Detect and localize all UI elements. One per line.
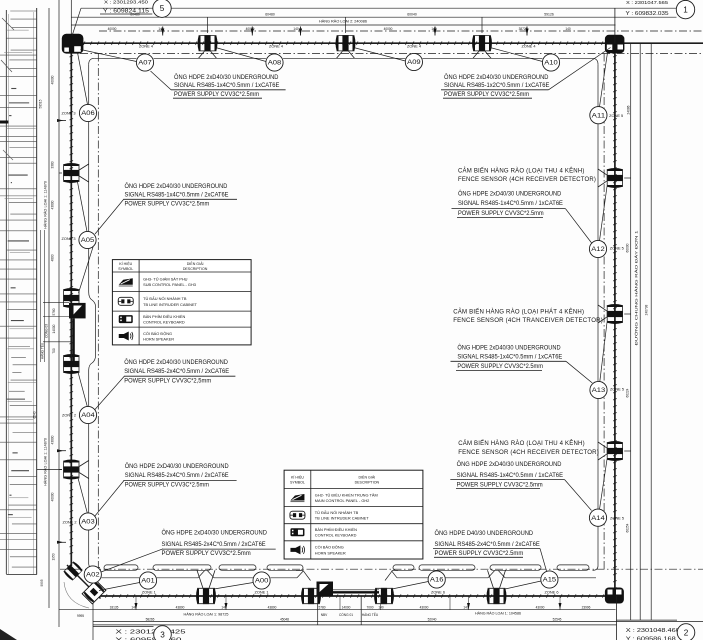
svg-text:DESCRIPTION: DESCRIPTION (355, 481, 380, 485)
svg-text:CẢM BIẾN HÀNG RÀO (LOẠI THU 4: CẢM BIẾN HÀNG RÀO (LOẠI THU 4 KÊNH) (458, 167, 585, 175)
svg-text:ZONE 5: ZONE 5 (610, 247, 624, 251)
svg-text:HÀNG TẾU: HÀNG TẾU (40, 342, 45, 359)
svg-text:14000: 14000 (342, 605, 351, 609)
svg-text:CỔNG 03: CỔNG 03 (44, 324, 49, 338)
svg-text:A07: A07 (138, 60, 152, 67)
svg-text:ÔNG HDPE 2xD40/30 UNDERGROUND: ÔNG HDPE 2xD40/30 UNDERGROUND (162, 528, 268, 537)
svg-text:3: 3 (160, 630, 165, 639)
svg-text:ÔNG HDPE 2xD40/30 UNDERGROUND: ÔNG HDPE 2xD40/30 UNDERGROUND (174, 72, 279, 81)
svg-text:X : 2301293.450: X : 2301293.450 (104, 0, 149, 5)
svg-text:6540: 6540 (33, 411, 37, 418)
svg-text:SIGNAL RS485-1x4C*0.5mm / 1xCA: SIGNAL RS485-1x4C*0.5mm / 1xCAT6E (457, 472, 564, 479)
svg-text:140: 140 (158, 27, 164, 31)
svg-text:SYMBOL: SYMBOL (118, 267, 133, 271)
svg-text:HÀNG RÀO LOẠI 1: 114870: HÀNG RÀO LOẠI 1: 114870 (44, 438, 48, 486)
svg-text:SYMBOL: SYMBOL (290, 481, 305, 485)
svg-text:ZONE 1: ZONE 1 (142, 591, 156, 595)
svg-text:ZONE 4: ZONE 4 (139, 45, 153, 49)
svg-text:40000: 40000 (51, 492, 55, 501)
svg-text:60040: 60040 (407, 13, 417, 17)
svg-text:DIỄN GIẢI: DIỄN GIẢI (358, 475, 375, 480)
svg-text:7000: 7000 (366, 605, 373, 609)
svg-text:DESCRIPTION: DESCRIPTION (183, 267, 208, 271)
svg-text:A11: A11 (592, 112, 606, 119)
svg-text:700: 700 (52, 348, 56, 354)
svg-text:ZONE 5: ZONE 5 (609, 114, 623, 118)
svg-text:5780: 5780 (318, 605, 325, 609)
svg-text:ĐƯỜNG CHUNG HÀNG RÀO ĐÁY ĐƠN 1: ĐƯỜNG CHUNG HÀNG RÀO ĐÁY ĐƠN 1 (634, 230, 639, 345)
svg-text:POWER SUPPLY CVV3C*2.5mm: POWER SUPPLY CVV3C*2.5mm (435, 550, 524, 557)
svg-text:ZONE 6: ZONE 6 (431, 590, 445, 594)
svg-text:1: 1 (683, 5, 688, 14)
svg-text:ÔNG HDPE D40/30 UNDERGROUND: ÔNG HDPE D40/30 UNDERGROUND (435, 528, 534, 537)
svg-text:A15: A15 (543, 577, 557, 584)
svg-text:POWER SUPPLY CVV3C*2.5mm: POWER SUPPLY CVV3C*2.5mm (162, 550, 252, 557)
svg-text:A04: A04 (81, 412, 95, 419)
svg-text:SIGNAL RS485-1x2C*0.5mm / 1xCA: SIGNAL RS485-1x2C*0.5mm / 1xCAT6E (444, 82, 550, 89)
svg-text:SIGNAL RS485-2x4C*0.5mm / 2xCA: SIGNAL RS485-2x4C*0.5mm / 2xCAT6E (124, 368, 229, 375)
svg-text:FENCE SENSOR (4CH TRANCEIVER D: FENCE SENSOR (4CH TRANCEIVER DETECTOR) (453, 317, 603, 324)
svg-text:14000: 14000 (52, 324, 56, 333)
svg-text:KÍ HIỆU: KÍ HIỆU (291, 475, 304, 480)
svg-text:CÒI BÁO ĐỘNG: CÒI BÁO ĐỘNG (143, 331, 172, 336)
svg-text:52545: 52545 (553, 617, 562, 621)
svg-text:140: 140 (431, 27, 437, 31)
svg-text:A14: A14 (591, 515, 605, 522)
svg-text:HÀNG RÀO LOẠI 1: 104586: HÀNG RÀO LOẠI 1: 104586 (475, 611, 521, 615)
svg-text:140: 140 (131, 605, 137, 609)
svg-text:43800: 43800 (268, 605, 277, 609)
svg-text:18135: 18135 (110, 605, 119, 609)
svg-text:KÍ HIỆU: KÍ HIỆU (119, 261, 132, 266)
svg-text:POWER SUPPLY CVV3C*2.5mm: POWER SUPPLY CVV3C*2.5mm (125, 482, 210, 489)
svg-text:HÀNG RÀO LOẠI 2: 240086: HÀNG RÀO LOẠI 2: 240086 (319, 20, 367, 24)
svg-text:NBV: NBV (321, 613, 328, 617)
svg-text:5780: 5780 (52, 308, 56, 315)
svg-text:CỔNG 01: CỔNG 01 (339, 612, 353, 617)
svg-text:A16: A16 (430, 577, 444, 584)
svg-text:52040: 52040 (428, 617, 437, 621)
svg-text:X : 2301048.460: X : 2301048.460 (626, 628, 680, 634)
svg-text:ZONE 5: ZONE 5 (610, 517, 624, 521)
svg-text:A01: A01 (141, 578, 155, 585)
svg-text:60480: 60480 (130, 13, 140, 17)
svg-text:ÔNG HDPE 2xD40/30 UNDERGROUND: ÔNG HDPE 2xD40/30 UNDERGROUND (124, 357, 228, 366)
svg-text:A03: A03 (81, 519, 95, 526)
svg-text:59126: 59126 (544, 13, 554, 17)
svg-text:ÔNG HDPE 2xD40/30 UNDERGROUND: ÔNG HDPE 2xD40/30 UNDERGROUND (125, 181, 228, 190)
svg-text:POWER SUPPLY CVV3C*2.5mm: POWER SUPPLY CVV3C*2.5mm (125, 200, 210, 207)
svg-text:9995: 9995 (77, 614, 84, 618)
svg-text:5: 5 (160, 4, 165, 13)
svg-text:60254: 60254 (626, 523, 630, 532)
svg-text:A12: A12 (591, 246, 605, 253)
svg-text:58515: 58515 (39, 99, 43, 108)
svg-text:38726: 38726 (519, 27, 528, 31)
svg-text:SIGNAL RS485-2x4C*0.5mm / 2xCA: SIGNAL RS485-2x4C*0.5mm / 2xCAT6E (125, 472, 229, 479)
svg-text:ZONE 1: ZONE 1 (255, 591, 269, 595)
svg-text:40000: 40000 (246, 27, 255, 31)
svg-text:POWER SUPPLY CVV3C*2.5mm: POWER SUPPLY CVV3C*2.5mm (457, 482, 544, 489)
svg-text:HÀNG TẾU: HÀNG TẾU (362, 612, 379, 617)
svg-text:DIỄN GIẢI: DIỄN GIẢI (187, 261, 204, 266)
svg-text:CONTROL KEYBOARD: CONTROL KEYBOARD (143, 320, 185, 325)
svg-text:CẢM BIẾN HÀNG RÀO (LOẠI THU 4: CẢM BIẾN HÀNG RÀO (LOẠI THU 4 KÊNH) (458, 439, 585, 447)
svg-text:SIGNAL RS485-1x4C*0.5mm / 1xCA: SIGNAL RS485-1x4C*0.5mm / 1xCAT6E (174, 82, 280, 89)
svg-text:ZONE 6: ZONE 6 (545, 590, 559, 594)
svg-text:140: 140 (293, 27, 299, 31)
svg-text:A13: A13 (592, 387, 606, 394)
svg-text:ZONE 3: ZONE 3 (62, 112, 76, 116)
svg-text:POWER SUPPLY CVV3C*2,5mm: POWER SUPPLY CVV3C*2,5mm (124, 377, 211, 384)
svg-text:X : 2301278.425: X : 2301278.425 (116, 629, 186, 635)
svg-text:MAIN CONTROL PANEL - GH2: MAIN CONTROL PANEL - GH2 (315, 498, 370, 503)
svg-text:60480: 60480 (265, 13, 275, 17)
svg-text:X : 2301047.565: X : 2301047.565 (626, 0, 669, 5)
svg-text:GH3- TỦ GIÁM SÁT PHỤ: GH3- TỦ GIÁM SÁT PHỤ (143, 277, 188, 282)
svg-text:CẢM BIẾN HÀNG RÀO (LOẠI PHÁT 4: CẢM BIẾN HÀNG RÀO (LOẠI PHÁT 4 KÊNH) (453, 307, 584, 315)
svg-text:ÔNG HDPE 2xD40/30 UNDERGROUND: ÔNG HDPE 2xD40/30 UNDERGROUND (125, 461, 229, 470)
svg-text:HORN SPEAKER: HORN SPEAKER (143, 336, 174, 341)
svg-text:BÀN PHÍM ĐIỀU KHIỂN: BÀN PHÍM ĐIỀU KHIỂN (143, 314, 185, 319)
svg-text:SIGNAL RS485-1x4C*0.5mm / 1xCA: SIGNAL RS485-1x4C*0.5mm / 1xCAT6E (457, 354, 562, 361)
svg-text:FENCE SENSOR (4CH RECEIVER DET: FENCE SENSOR (4CH RECEIVER DETECTOR) (458, 176, 596, 183)
svg-text:43800: 43800 (176, 605, 185, 609)
svg-text:240798: 240798 (645, 304, 649, 315)
svg-text:ZONE 4: ZONE 4 (269, 45, 283, 49)
svg-text:ZONE 4: ZONE 4 (522, 44, 536, 48)
svg-text:TỦ ĐẤU NỐI NHÁNH TB: TỦ ĐẤU NỐI NHÁNH TB (315, 510, 359, 515)
svg-text:1950: 1950 (52, 553, 56, 560)
svg-text:HÀNG RÀO LOẠI 1: 98725: HÀNG RÀO LOẠI 1: 98725 (184, 613, 229, 617)
svg-text:TB LINE INTRUDER CABINET: TB LINE INTRUDER CABINET (143, 302, 197, 307)
svg-text:ÔNG HDPE 2xD40/30 UNDERGROUND: ÔNG HDPE 2xD40/30 UNDERGROUND (457, 342, 560, 351)
svg-text:POWER SUPPLY CVV3C*2.5mm: POWER SUPPLY CVV3C*2.5mm (457, 363, 543, 370)
svg-text:9995: 9995 (40, 579, 44, 586)
svg-text:SIGNAL RS485-2x4C*0.5mm / 2xCA: SIGNAL RS485-2x4C*0.5mm / 2xCAT6E (435, 541, 541, 548)
svg-text:ZONE 4: ZONE 4 (407, 44, 421, 48)
svg-text:43000: 43000 (536, 605, 545, 609)
svg-text:40000: 40000 (51, 75, 55, 84)
svg-text:ZONE 2: ZONE 2 (62, 414, 76, 418)
svg-text:ZONE 3: ZONE 3 (62, 237, 76, 241)
svg-text:CÒI BÁO ĐỘNG: CÒI BÁO ĐỘNG (315, 545, 344, 550)
svg-text:23996: 23996 (582, 605, 591, 609)
svg-text:FENCE SENSOR (4CH RECEIVER DET: FENCE SENSOR (4CH RECEIVER DETECTOR) (458, 449, 599, 456)
svg-text:60224: 60224 (626, 388, 630, 397)
svg-text:SIGNAL RS485-1x4C*0.5mm / 2xCA: SIGNAL RS485-1x4C*0.5mm / 2xCAT6E (125, 191, 230, 198)
svg-text:43000: 43000 (420, 605, 429, 609)
svg-text:HORN SPEAKER: HORN SPEAKER (315, 550, 346, 555)
svg-text:SIGNAL RS485-2x4C*0.5mm / 2xCA: SIGNAL RS485-2x4C*0.5mm / 2xCAT6E (162, 541, 267, 548)
svg-text:40000: 40000 (384, 27, 393, 31)
svg-text:SIGNAL RS485-1x4C*0.5mm / 1xCA: SIGNAL RS485-1x4C*0.5mm / 1xCAT6E (458, 200, 563, 207)
svg-text:58265: 58265 (146, 617, 155, 621)
svg-text:SUB CONTROL PANEL - GH3: SUB CONTROL PANEL - GH3 (143, 282, 196, 287)
svg-text:4800: 4800 (51, 254, 55, 261)
svg-text:3380: 3380 (51, 161, 55, 168)
svg-text:ZONE 2: ZONE 2 (63, 521, 77, 525)
svg-text:POWER SUPPLY CVV3C*2.5mm: POWER SUPPLY CVV3C*2.5mm (458, 210, 544, 217)
svg-text:ZONE 5: ZONE 5 (610, 388, 624, 392)
svg-text:A05: A05 (81, 237, 95, 244)
svg-text:CONTROL KEYBOARD: CONTROL KEYBOARD (315, 533, 357, 538)
svg-text:POWER SUPPLY CVV3C*2.5mm: POWER SUPPLY CVV3C*2.5mm (444, 91, 530, 98)
svg-text:TB LINE INTRUDER CABINET: TB LINE INTRUDER CABINET (315, 516, 369, 521)
svg-text:24086: 24086 (627, 105, 631, 114)
svg-text:A06: A06 (81, 110, 95, 117)
svg-text:ÔNG HDPE 2xD40/30 UNDERGROUND: ÔNG HDPE 2xD40/30 UNDERGROUND (458, 188, 561, 197)
svg-text:140: 140 (463, 605, 469, 609)
svg-text:A02: A02 (86, 572, 100, 579)
svg-text:Y : 609586.168: Y : 609586.168 (626, 637, 676, 640)
svg-text:A08: A08 (268, 60, 282, 67)
svg-text:45048: 45048 (280, 617, 289, 621)
svg-text:A09: A09 (407, 59, 421, 66)
svg-text:ÔNG HDPE 2xD40/30 UNDERGROUND: ÔNG HDPE 2xD40/30 UNDERGROUND (444, 72, 549, 81)
svg-text:HÀNG RÀO LOẠI 1: 114870: HÀNG RÀO LOẠI 1: 114870 (44, 181, 48, 229)
svg-text:ÔNG HDPE 2xD40/30 UNDERGROUND: ÔNG HDPE 2xD40/30 UNDERGROUND (457, 459, 562, 468)
svg-text:43800: 43800 (51, 200, 55, 209)
svg-text:A00: A00 (255, 578, 269, 585)
svg-text:A10: A10 (544, 60, 558, 67)
svg-text:Y : 609832.035: Y : 609832.035 (626, 11, 669, 17)
svg-text:POWER SUPPLY CVV3C*2.5mm: POWER SUPPLY CVV3C*2.5mm (174, 91, 260, 98)
svg-text:GH2- TỦ ĐIỀU KHIỂN TRUNG TÂM: GH2- TỦ ĐIỀU KHIỂN TRUNG TÂM (315, 492, 378, 497)
svg-text:TỦ ĐẤU NỐI NHÁNH TB: TỦ ĐẤU NỐI NHÁNH TB (143, 296, 187, 301)
svg-text:43800: 43800 (51, 435, 55, 444)
svg-text:140: 140 (565, 27, 571, 31)
svg-text:140: 140 (378, 605, 384, 609)
svg-text:60000: 60000 (626, 243, 630, 252)
svg-text:BÀN PHÍM ĐIỀU KHIỂN: BÀN PHÍM ĐIỀU KHIỂN (315, 527, 357, 532)
svg-text:40000: 40000 (108, 27, 117, 31)
svg-text:2: 2 (684, 628, 689, 637)
svg-text:140: 140 (221, 605, 227, 609)
